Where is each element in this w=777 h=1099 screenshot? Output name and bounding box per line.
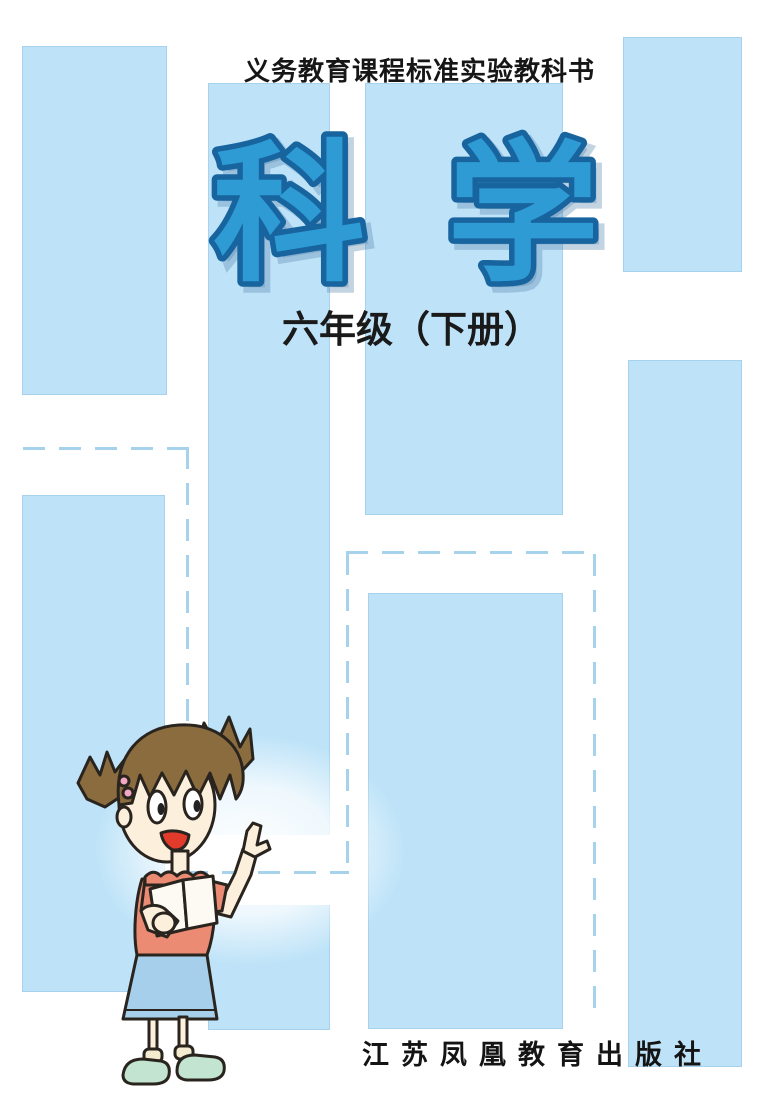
book-title-art: 科学 科学 — [205, 115, 685, 305]
girl-fist — [153, 913, 175, 933]
background-block — [628, 360, 742, 1067]
dashed-path-segment — [346, 551, 595, 554]
publisher-name: 江苏凤凰教育出版社 — [362, 1033, 713, 1072]
girl-pointing-hand — [243, 823, 270, 857]
girl-hair-tie — [123, 788, 133, 798]
dashed-path-segment — [346, 553, 349, 874]
dashed-path-segment — [23, 447, 187, 450]
girl-shoe — [123, 1059, 169, 1084]
girl-leg — [179, 1017, 187, 1049]
background-block — [22, 46, 167, 395]
grade-subtitle: 六年级（下册） — [282, 299, 541, 353]
girl-book-page — [183, 876, 217, 929]
girl-leg — [149, 1019, 157, 1051]
dashed-path-segment — [593, 554, 596, 1020]
girl-ear — [117, 807, 131, 827]
girl-pointing-illustration — [45, 697, 275, 1097]
girl-pupil — [194, 800, 201, 812]
girl-pupil — [158, 803, 165, 815]
girl-shoe — [177, 1055, 224, 1080]
series-label: 义务教育课程标准实验教科书 — [244, 51, 595, 88]
book-title: 科学 — [213, 130, 681, 300]
book-cover: 义务教育课程标准实验教科书 科学 科学 六年级（下册） — [0, 0, 777, 1099]
girl-hair-tie — [119, 776, 129, 786]
